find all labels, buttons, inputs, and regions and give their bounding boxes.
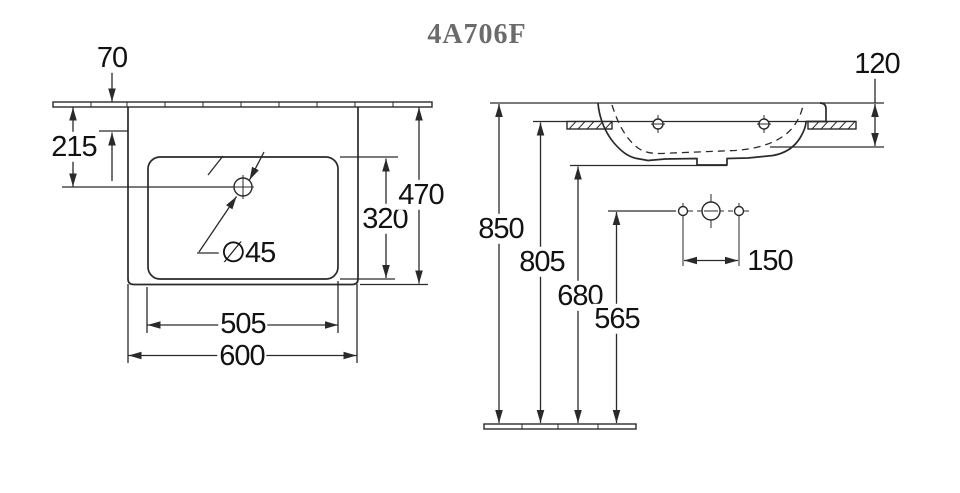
dim-label-600: 600 bbox=[217, 341, 266, 371]
basin-profile-outline bbox=[598, 103, 826, 165]
faucet-holes bbox=[608, 194, 753, 266]
dim-label-150: 150 bbox=[745, 246, 794, 276]
technical-drawing-page: 4A706F 70 215 320 470 505 600 ∅45 120 85… bbox=[0, 0, 960, 493]
dim-70-lines bbox=[99, 70, 128, 181]
washbasin-dimension-drawing bbox=[0, 0, 960, 493]
wall-line bbox=[53, 102, 432, 107]
dim-label-120: 120 bbox=[852, 49, 901, 79]
dim-label-565: 565 bbox=[592, 304, 641, 334]
dim-label-505: 505 bbox=[218, 309, 267, 339]
dim-label-805: 805 bbox=[517, 247, 566, 277]
dim-label-70: 70 bbox=[95, 43, 129, 73]
floor-line bbox=[484, 424, 636, 429]
mounting-holes bbox=[651, 115, 771, 133]
dim-label-850: 850 bbox=[476, 214, 525, 244]
bowl-hidden-line bbox=[612, 105, 803, 153]
dim-label-drain-diameter: ∅45 bbox=[219, 238, 278, 268]
dim-label-470: 470 bbox=[396, 180, 445, 210]
wall-hatch-right bbox=[808, 122, 856, 130]
dim-120-lines bbox=[770, 77, 884, 147]
product-code-title: 4A706F bbox=[427, 19, 526, 51]
dim-label-215: 215 bbox=[49, 132, 98, 162]
